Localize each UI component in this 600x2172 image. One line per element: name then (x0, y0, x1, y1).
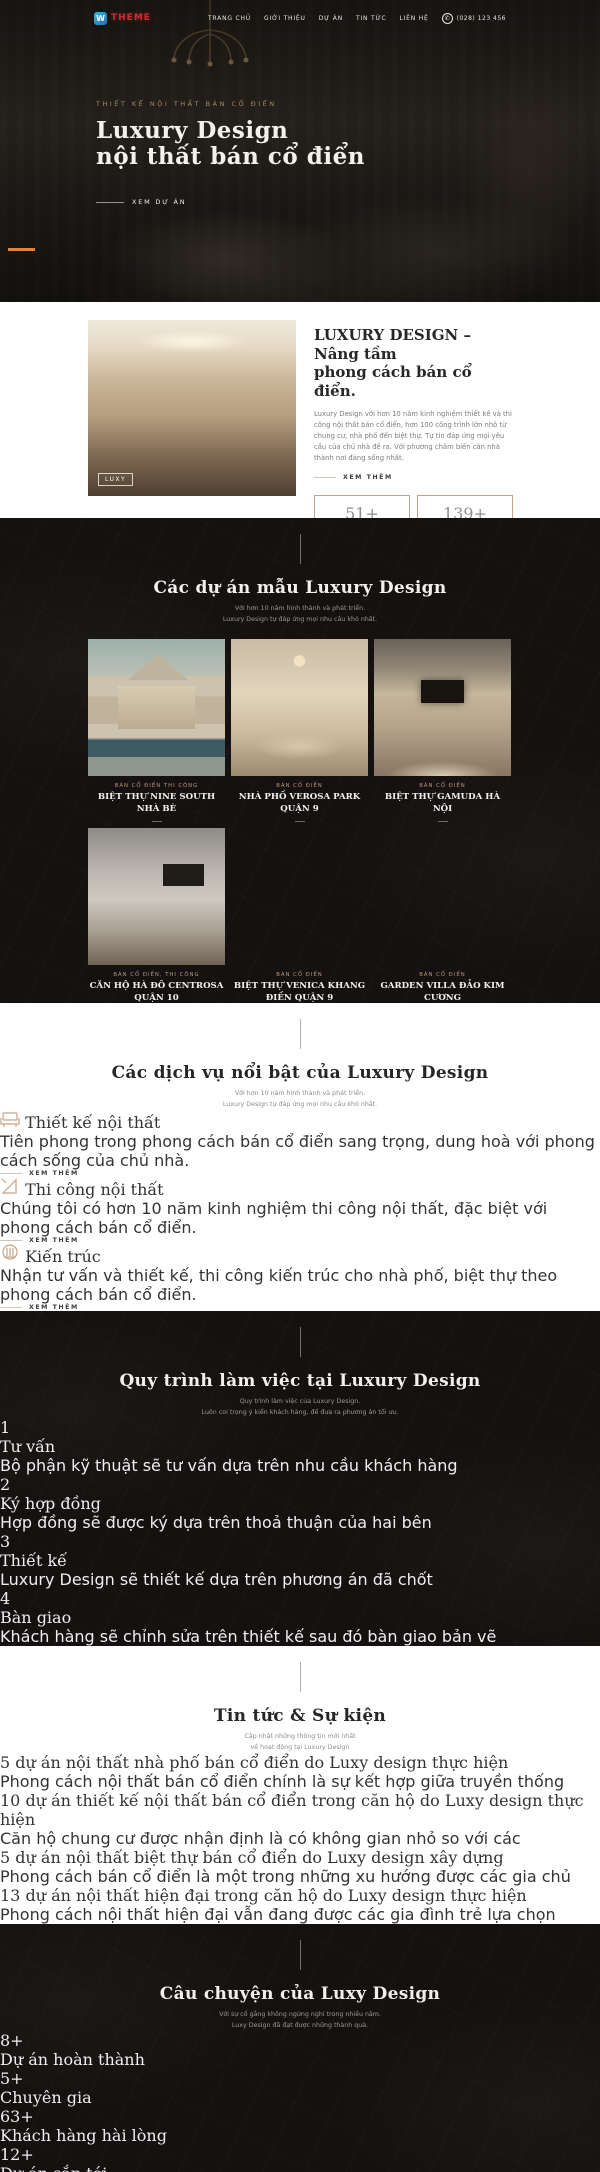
step-title: Bàn giao (0, 1608, 600, 1627)
story-title: Câu chuyện của Luxy Design (0, 1984, 600, 2004)
projects-grid: BÁN CỔ ĐIỂN THI CÔNG BIỆT THỰ NINE SOUTH… (88, 639, 512, 1003)
story-subtitle: Với sự cố gắng không ngừng nghỉ trong nh… (0, 2010, 600, 2031)
about-title-line2: phong cách bán cổ điển. (314, 363, 513, 400)
about-body: Luxury Design với hơn 10 năm kinh nghiệm… (314, 409, 513, 464)
more-label: XEM THÊM (343, 474, 393, 481)
project-category: BÁN CỔ ĐIỂN, THI CÔNG (88, 972, 225, 978)
news-card-excerpt: Phong cách bán cổ điển là một trong nhữn… (0, 1867, 600, 1886)
drafting-triangle-icon (0, 1177, 20, 1195)
hero-title-line2: nội thất bán cổ điển (96, 144, 365, 170)
process-steps: 1 Tư vấn Bộ phận kỹ thuật sẽ tư vấn dựa … (0, 1418, 600, 1646)
about-content: LUXURY DESIGN – Nâng tầm phong cách bán … (314, 320, 513, 541)
subtitle-line1: Với sự cố gắng không ngừng nghỉ trong nh… (0, 2010, 600, 2021)
dash-decoration (438, 821, 448, 822)
main-nav: TRANG CHỦ GIỚI THIỆU DỰ ÁN TIN TỨC LIÊN … (208, 13, 506, 24)
stat-value: 63+ (0, 2107, 34, 2126)
subtitle-line2: Luxury Design tự đáp ứng mọi nhu cầu khó… (0, 615, 600, 626)
news-grid: 5 dự án nội thất nhà phố bán cổ điển do … (0, 1753, 600, 1924)
news-card-title: 5 dự án nội thất nhà phố bán cổ điển do … (0, 1753, 600, 1772)
building-columns-icon (0, 1244, 20, 1262)
services-grid: Thiết kế nội thất Tiên phong trong phong… (0, 1110, 600, 1311)
process-title: Quy trình làm việc tại Luxury Design (0, 1371, 600, 1391)
nav-item-home[interactable]: TRANG CHỦ (208, 15, 251, 22)
project-card[interactable]: BÁN CỔ ĐIỂN GARDEN VILLA ĐẢO KIM CƯƠNG (374, 828, 511, 1003)
more-label: XEM THÊM (29, 1304, 79, 1311)
divider-line (300, 1019, 301, 1049)
step-number: 2 (0, 1475, 600, 1494)
service-more-link[interactable]: XEM THÊM (0, 1170, 600, 1177)
news-section: Tin tức & Sự kiện Cập nhật những thông t… (0, 1646, 600, 1924)
nav-item-about[interactable]: GIỚI THIỆU (264, 15, 306, 22)
service-more-link[interactable]: XEM THÊM (0, 1237, 600, 1244)
subtitle-line2: Luxy Design đã đạt được những thành quả. (0, 2021, 600, 2032)
projects-title: Các dự án mẫu Luxury Design (0, 578, 600, 598)
luxury-design-homepage: W THEME TRANG CHỦ GIỚI THIỆU DỰ ÁN TIN T… (0, 0, 600, 2172)
project-photo (231, 639, 368, 776)
site-header: W THEME TRANG CHỦ GIỚI THIỆU DỰ ÁN TIN T… (0, 0, 600, 36)
nav-item-contact[interactable]: LIÊN HỆ (399, 15, 428, 22)
story-header: Câu chuyện của Luxy Design Với sự cố gắn… (0, 1924, 600, 2031)
story-stats: 8+ Dự án hoàn thành 5+ Chuyên gia 63+ Kh… (0, 2031, 600, 2172)
news-title: Tin tức & Sự kiện (0, 1706, 600, 1726)
project-category: BÁN CỔ ĐIỂN (374, 783, 511, 789)
services-title: Các dịch vụ nổi bật của Luxury Design (0, 1063, 600, 1083)
process-section: Quy trình làm việc tại Luxury Design Quy… (0, 1311, 600, 1646)
project-card[interactable]: BÁN CỔ ĐIỂN BIỆT THỰ VENICA KHANG ĐIỀN Q… (231, 828, 368, 1003)
services-subtitle: Với hơn 10 năm hình thành và phát triển.… (0, 1089, 600, 1110)
step-number: 4 (0, 1589, 600, 1608)
project-category: BÁN CỔ ĐIỂN THI CÔNG (88, 783, 225, 789)
projects-subtitle: Với hơn 10 năm hình thành và phát triển.… (0, 604, 600, 625)
project-photo (231, 828, 368, 965)
stat-value: 8+ (0, 2031, 24, 2050)
project-card[interactable]: BÁN CỔ ĐIỂN THI CÔNG BIỆT THỰ NINE SOUTH… (88, 639, 225, 822)
service-body: Nhận tư vấn và thiết kế, thi công kiến t… (0, 1266, 600, 1304)
project-category: BÁN CỔ ĐIỂN (374, 972, 511, 978)
projects-section: Các dự án mẫu Luxury Design Với hơn 10 n… (0, 518, 600, 1003)
stat-label: Khách hàng hài lòng (0, 2126, 600, 2145)
divider-line (300, 1940, 301, 1970)
process-step-1: 1 Tư vấn Bộ phận kỹ thuật sẽ tư vấn dựa … (0, 1418, 600, 1475)
more-line-decoration (0, 1240, 22, 1241)
subtitle-line1: Quy trình làm việc của Luxury Design. (0, 1397, 600, 1408)
nav-item-projects[interactable]: DỰ ÁN (319, 15, 343, 22)
story-section: Câu chuyện của Luxy Design Với sự cố gắn… (0, 1924, 600, 2172)
project-photo (374, 639, 511, 776)
service-title: Kiến trúc (25, 1247, 101, 1266)
hero-content: THIẾT KẾ NỘI THẤT BÁN CỔ ĐIỂN Luxury Des… (96, 100, 365, 206)
step-title: Tư vấn (0, 1437, 600, 1456)
story-stat-upcoming: 12+ Dự án sắp tới (0, 2145, 600, 2172)
more-line-decoration (0, 1173, 22, 1174)
news-card-title: 10 dự án thiết kế nội thất bán cổ điển t… (0, 1791, 600, 1829)
about-photo: LUXY (88, 320, 296, 496)
step-number: 3 (0, 1532, 600, 1551)
service-body: Chúng tôi có hơn 10 năm kinh nghiệm thi … (0, 1199, 600, 1237)
news-card-title: 5 dự án nội thất biệt thự bán cổ điển do… (0, 1848, 600, 1867)
service-more-link[interactable]: XEM THÊM (0, 1304, 600, 1311)
project-category: BÁN CỔ ĐIỂN (231, 783, 368, 789)
project-photo (374, 828, 511, 965)
step-body: Hợp đồng sẽ được ký dựa trên thoả thuận … (0, 1513, 600, 1532)
about-section: LUXY LUXURY DESIGN – Nâng tầm phong cách… (0, 302, 600, 518)
project-title: GARDEN VILLA ĐẢO KIM CƯƠNG (374, 981, 511, 1003)
service-body: Tiên phong trong phong cách bán cổ điển … (0, 1132, 600, 1170)
stat-label: Chuyên gia (0, 2088, 600, 2107)
services-header: Các dịch vụ nổi bật của Luxury Design Vớ… (0, 1003, 600, 1110)
phone-icon: ✆ (442, 13, 453, 24)
subtitle-line1: Cập nhật những thông tin mới nhất (0, 1732, 600, 1743)
service-card-construction[interactable]: Thi công nội thất Chúng tôi có hơn 10 nă… (0, 1177, 600, 1244)
stat-value: 5+ (0, 2069, 24, 2088)
project-photo (88, 828, 225, 965)
stat-label: Dự án hoàn thành (0, 2050, 600, 2069)
services-section: Các dịch vụ nổi bật của Luxury Design Vớ… (0, 1003, 600, 1311)
news-card-excerpt: Phong cách nội thất bán cổ điển chính là… (0, 1772, 600, 1791)
subtitle-line1: Với hơn 10 năm hình thành và phát triển. (0, 604, 600, 615)
project-title: BIỆT THỰ NINE SOUTH NHÀ BÈ (88, 792, 225, 815)
more-line-decoration (0, 1307, 22, 1308)
process-step-4: 4 Bàn giao Khách hàng sẽ chỉnh sửa trên … (0, 1589, 600, 1646)
step-title: Ký hợp đồng (0, 1494, 600, 1513)
subtitle-line2: Luxury Design tự đáp ứng mọi nhu cầu khó… (0, 1100, 600, 1111)
project-card[interactable]: BÁN CỔ ĐIỂN, THI CÔNG CĂN HỘ HÀ ĐÔ CENTR… (88, 828, 225, 1003)
step-number: 1 (0, 1418, 600, 1437)
project-title: CĂN HỘ HÀ ĐÔ CENTROSA QUẬN 10 (88, 981, 225, 1003)
more-label: XEM THÊM (29, 1170, 79, 1177)
news-subtitle: Cập nhật những thông tin mới nhất về hoạ… (0, 1732, 600, 1753)
service-card-design[interactable]: Thiết kế nội thất Tiên phong trong phong… (0, 1110, 600, 1177)
story-stat-happy-clients: 63+ Khách hàng hài lòng (0, 2107, 600, 2145)
about-title: LUXURY DESIGN – Nâng tầm phong cách bán … (314, 326, 513, 400)
service-card-architecture[interactable]: Kiến trúc Nhận tư vấn và thiết kế, thi c… (0, 1244, 600, 1311)
project-title: BIỆT THỰ GAMUDA HÀ NỘI (374, 792, 511, 815)
subtitle-line2: Luôn coi trọng ý kiến khách hàng, để đưa… (0, 1408, 600, 1419)
step-body: Khách hàng sẽ chỉnh sửa trên thiết kế sa… (0, 1627, 600, 1646)
sofa-icon (0, 1110, 20, 1128)
news-card[interactable]: 5 dự án nội thất biệt thự bán cổ điển do… (0, 1848, 600, 1886)
divider-line (300, 534, 301, 564)
project-card[interactable]: BÁN CỔ ĐIỂN NHÀ PHỐ VEROSA PARK QUẬN 9 (231, 639, 368, 822)
brand-w-icon: W (94, 12, 107, 25)
stat-label: Dự án sắp tới (0, 2164, 600, 2172)
cta-line-decoration (96, 202, 124, 203)
hero-cta-button[interactable]: XEM DỰ ÁN (96, 198, 365, 206)
brand-name: THEME (111, 13, 151, 23)
stat-value: 12+ (0, 2145, 34, 2164)
subtitle-line2: về hoạt động tại Luxury Design (0, 1743, 600, 1754)
news-card-title: 13 dự án nội thất hiện đại trong căn hộ … (0, 1886, 600, 1905)
process-header: Quy trình làm việc tại Luxury Design Quy… (0, 1311, 600, 1418)
luxy-watermark-badge: LUXY (98, 473, 133, 486)
cta-label: XEM DỰ ÁN (132, 198, 186, 206)
project-card[interactable]: BÁN CỔ ĐIỂN BIỆT THỰ GAMUDA HÀ NỘI (374, 639, 511, 822)
project-title: NHÀ PHỐ VEROSA PARK QUẬN 9 (231, 792, 368, 815)
project-photo (88, 639, 225, 776)
news-card[interactable]: 13 dự án nội thất hiện đại trong căn hộ … (0, 1886, 600, 1924)
subtitle-line1: Với hơn 10 năm hình thành và phát triển. (0, 1089, 600, 1100)
news-card[interactable]: 10 dự án thiết kế nội thất bán cổ điển t… (0, 1791, 600, 1848)
service-title: Thi công nội thất (25, 1180, 164, 1199)
news-card[interactable]: 5 dự án nội thất nhà phố bán cổ điển do … (0, 1753, 600, 1791)
step-body: Luxury Design sẽ thiết kế dựa trên phươn… (0, 1570, 600, 1589)
hero-title: Luxury Design nội thất bán cổ điển (96, 118, 365, 170)
step-title: Thiết kế (0, 1551, 600, 1570)
story-stat-completed: 8+ Dự án hoàn thành (0, 2031, 600, 2069)
step-body: Bộ phận kỹ thuật sẽ tư vấn dựa trên nhu … (0, 1456, 600, 1475)
news-card-excerpt: Phong cách nội thất hiện đại vẫn đang đư… (0, 1905, 600, 1924)
more-label: XEM THÊM (29, 1237, 79, 1244)
about-more-link[interactable]: XEM THÊM (314, 474, 513, 481)
projects-header: Các dự án mẫu Luxury Design Với hơn 10 n… (0, 518, 600, 625)
process-step-3: 3 Thiết kế Luxury Design sẽ thiết kế dựa… (0, 1532, 600, 1589)
nav-item-news[interactable]: TIN TỨC (356, 15, 386, 22)
project-category: BÁN CỔ ĐIỂN (231, 972, 368, 978)
divider-line (300, 1327, 301, 1357)
slider-active-indicator[interactable] (8, 248, 35, 251)
hero-tagline: THIẾT KẾ NỘI THẤT BÁN CỔ ĐIỂN (96, 100, 365, 108)
news-card-excerpt: Căn hộ chung cư được nhận định là có khô… (0, 1829, 600, 1848)
hero-title-line1: Luxury Design (96, 118, 365, 144)
process-subtitle: Quy trình làm việc của Luxury Design. Lu… (0, 1397, 600, 1418)
header-phone[interactable]: ✆ (028) 123 456 (442, 13, 506, 24)
process-step-2: 2 Ký hợp đồng Hợp đồng sẽ được ký dựa tr… (0, 1475, 600, 1532)
site-logo[interactable]: W THEME (94, 12, 151, 25)
news-header: Tin tức & Sự kiện Cập nhật những thông t… (0, 1646, 600, 1753)
dash-decoration (295, 821, 305, 822)
about-title-line1: LUXURY DESIGN – Nâng tầm (314, 326, 513, 363)
service-title: Thiết kế nội thất (25, 1113, 160, 1132)
dash-decoration (152, 821, 162, 822)
more-line-decoration (314, 477, 336, 478)
story-stat-experts: 5+ Chuyên gia (0, 2069, 600, 2107)
divider-line (300, 1662, 301, 1692)
project-title: BIỆT THỰ VENICA KHANG ĐIỀN QUẬN 9 (231, 981, 368, 1003)
phone-number: (028) 123 456 (457, 15, 506, 22)
hero-section: W THEME TRANG CHỦ GIỚI THIỆU DỰ ÁN TIN T… (0, 0, 600, 302)
